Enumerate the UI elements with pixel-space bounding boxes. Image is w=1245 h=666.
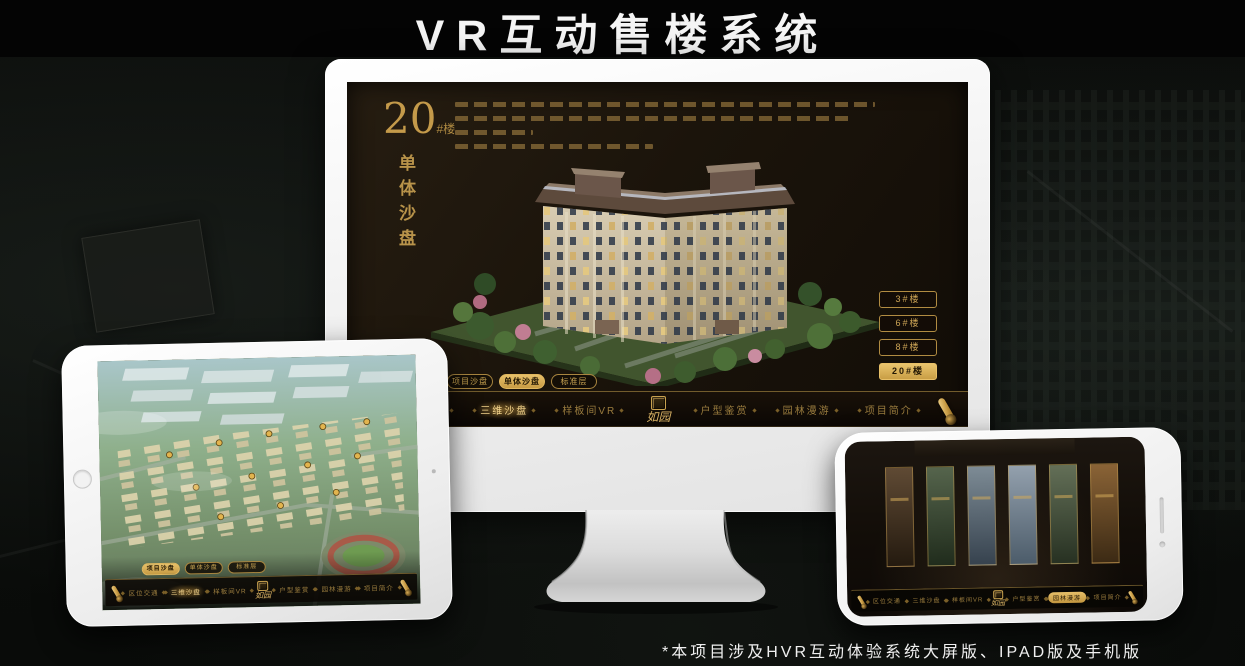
nav-project-intro[interactable]: 项目简介 xyxy=(861,400,917,419)
nav-showroom-vr[interactable]: 样板间VR xyxy=(558,400,620,419)
interior-ceiling xyxy=(914,438,1074,457)
gallery-panel[interactable] xyxy=(1090,463,1120,563)
tab-standard-floor[interactable]: 标准层 xyxy=(228,561,266,574)
camera-dot-icon xyxy=(432,469,436,473)
monitor-stand xyxy=(466,510,846,618)
floor-button-3[interactable]: 3#楼 xyxy=(879,291,937,308)
phone-device: 区位交通 三维沙盘 样板间VR 如园 户型鉴赏 园林漫游 项目简介 xyxy=(834,427,1183,626)
nav-garden-roam[interactable]: 园林漫游 xyxy=(779,400,835,419)
brand-logo: 如园 xyxy=(991,590,1005,607)
tab-project-sandbox[interactable]: 项目沙盘 xyxy=(142,563,180,576)
nav-location-traffic[interactable]: 区位交通 xyxy=(124,585,162,600)
gallery-panel[interactable] xyxy=(885,467,915,567)
seal-icon xyxy=(257,580,268,590)
brand-logo-text: 如园 xyxy=(255,591,271,599)
gallery-panel[interactable] xyxy=(967,465,997,565)
camera-dot-icon xyxy=(1159,541,1165,547)
building-subtitle: 单体沙盘 xyxy=(393,154,418,254)
nav-unit-plans[interactable]: 户型鉴赏 xyxy=(275,582,313,597)
nav-location-traffic[interactable]: 区位交通 xyxy=(869,594,905,608)
nav-unit-plans[interactable]: 户型鉴赏 xyxy=(1008,591,1044,605)
gallery-panel[interactable] xyxy=(1008,465,1038,565)
phone-screen: 区位交通 三维沙盘 样板间VR 如园 户型鉴赏 园林漫游 项目简介 xyxy=(844,437,1147,617)
floor-button-8[interactable]: 8#楼 xyxy=(879,339,937,356)
nav-3d-sandbox[interactable]: 三维沙盘 xyxy=(167,584,205,599)
tablet-device: 项目沙盘 单体沙盘 标准层 区位交通 三维沙盘 样板间VR 如园 户型鉴赏 园林… xyxy=(61,338,453,627)
brand-logo-text: 如园 xyxy=(991,600,1005,607)
nav-showroom-vr[interactable]: 样板间VR xyxy=(209,583,251,598)
nav-garden-roam[interactable]: 园林漫游 xyxy=(317,581,355,596)
sandbox-sub-tabs: 项目沙盘 单体沙盘 标准层 xyxy=(447,374,597,389)
nav-3d-sandbox[interactable]: 三维沙盘 xyxy=(908,593,944,607)
building-unit: #楼 xyxy=(436,122,455,136)
gallery-panel[interactable] xyxy=(1049,464,1079,564)
nav-unit-plans[interactable]: 户型鉴赏 xyxy=(697,400,753,419)
promo-page: VR互动售楼系统 20#楼 单体沙盘 xyxy=(0,0,1245,666)
nav-project-intro[interactable]: 项目简介 xyxy=(1089,590,1125,604)
page-title: VR互动售楼系统 xyxy=(0,1,1245,63)
brand-logo: 如园 xyxy=(646,396,670,423)
text-line xyxy=(455,102,875,107)
bg-plaque xyxy=(81,219,215,333)
tablet-screen: 项目沙盘 单体沙盘 标准层 区位交通 三维沙盘 样板间VR 如园 户型鉴赏 园林… xyxy=(97,355,420,611)
brand-logo-text: 如园 xyxy=(646,411,670,423)
text-line xyxy=(455,130,533,135)
building-number: 20 xyxy=(383,94,436,143)
brand-logo: 如园 xyxy=(255,580,271,599)
floor-button-group: 3#楼 6#楼 8#楼 20#楼 xyxy=(879,291,939,387)
tab-standard-floor[interactable]: 标准层 xyxy=(551,374,597,389)
nav-3d-sandbox[interactable]: 三维沙盘 xyxy=(476,400,532,419)
text-line xyxy=(455,116,853,121)
floor-button-6[interactable]: 6#楼 xyxy=(879,315,937,332)
tab-single-sandbox[interactable]: 单体沙盘 xyxy=(499,374,545,389)
tab-project-sandbox[interactable]: 项目沙盘 xyxy=(447,374,493,389)
nav-showroom-vr[interactable]: 样板间VR xyxy=(948,592,988,606)
floor-button-20[interactable]: 20#楼 xyxy=(879,363,937,380)
speaker-slot-icon xyxy=(1160,497,1165,533)
seal-icon xyxy=(651,396,666,410)
home-button-icon[interactable] xyxy=(73,469,92,488)
tab-single-sandbox[interactable]: 单体沙盘 xyxy=(185,562,223,575)
footnote-text: *本项目涉及HVR互动体验系统大屏版、IPAD版及手机版 xyxy=(662,638,1245,662)
scroll-icon[interactable] xyxy=(937,396,956,422)
gallery-panel[interactable] xyxy=(926,466,956,566)
building-model-image[interactable] xyxy=(425,144,887,386)
phone-nav-bar: 区位交通 三维沙盘 样板间VR 如园 户型鉴赏 园林漫游 项目简介 xyxy=(851,585,1143,612)
nav-garden-roam[interactable]: 园林漫游 xyxy=(1048,592,1086,604)
panorama-gallery xyxy=(885,463,1111,565)
nav-project-intro[interactable]: 项目简介 xyxy=(360,580,398,595)
building-heading: 20#楼 xyxy=(383,98,455,140)
seal-icon xyxy=(993,590,1003,599)
scroll-icon[interactable] xyxy=(1128,590,1138,603)
